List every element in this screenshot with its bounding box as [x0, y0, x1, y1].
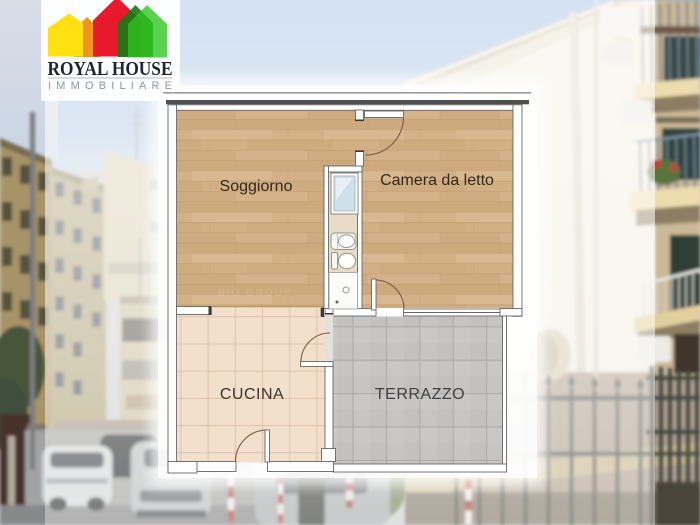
- svg-text:ROYAL HOUSE: ROYAL HOUSE: [48, 59, 173, 80]
- svg-text:IMMOBILIARE: IMMOBILIARE: [48, 80, 172, 92]
